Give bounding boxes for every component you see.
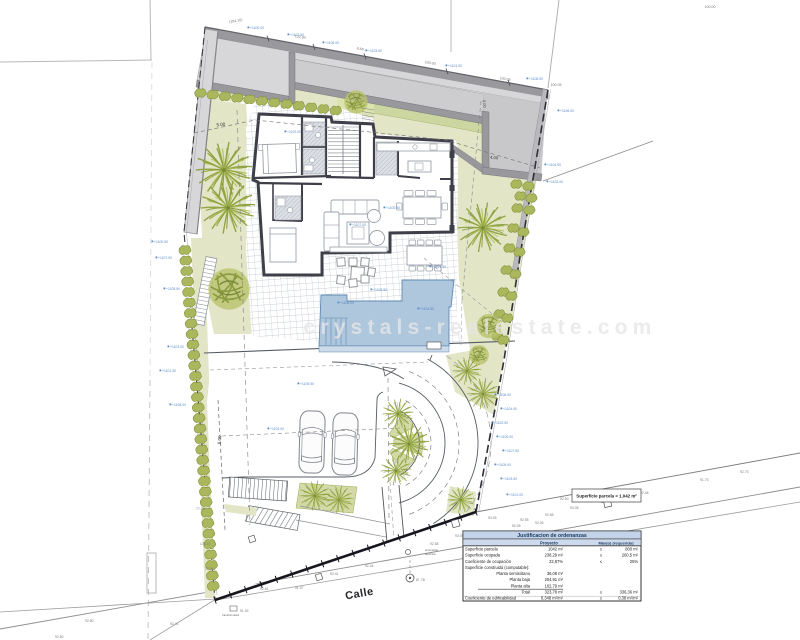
svg-text:92.80: 92.80 [85,619,94,623]
svg-text:+1106.50: +1106.50 [497,393,511,397]
svg-text:0,38 m²/m²: 0,38 m²/m² [618,596,638,601]
svg-text:93.05: 93.05 [455,534,464,538]
svg-text:+1107.50: +1107.50 [505,449,519,453]
svg-text:+1108.50: +1108.50 [373,288,387,292]
svg-text:336,36 m²: 336,36 m² [620,590,639,595]
svg-text:92.41: 92.41 [330,572,339,576]
svg-text:+1101.50: +1101.50 [432,265,446,269]
svg-text:+1108.00: +1108.00 [172,403,186,407]
svg-text:92.88: 92.88 [430,542,439,546]
svg-text:+1101.00: +1101.00 [448,64,462,68]
svg-text:0,348 m²/m²: 0,348 m²/m² [541,596,564,601]
svg-text:Planta baja: Planta baja [510,577,531,582]
svg-text:92.44: 92.44 [365,564,374,568]
svg-text:Superficie parcela: Superficie parcela [465,547,498,552]
svg-text:+1105.00: +1105.00 [497,463,511,467]
svg-text:Total: Total [521,590,530,595]
svg-text:+1103.00: +1103.00 [170,345,184,349]
svg-text:100.05: 100.05 [551,83,562,87]
svg-text:204,91 m²: 204,91 m² [545,577,564,582]
svg-text:+1101.50: +1101.50 [162,369,176,373]
svg-text:92.05: 92.05 [535,521,544,525]
svg-text:93.05: 93.05 [488,516,497,520]
svg-text:50.05: 50.05 [512,524,521,528]
svg-text:36,08 m²: 36,08 m² [547,571,564,576]
svg-text:Planta alta: Planta alta [511,583,531,588]
svg-text:+1103.00: +1103.00 [270,427,284,431]
svg-text:6.00: 6.00 [217,435,223,445]
svg-text:260,5 m²: 260,5 m² [622,553,639,558]
svg-text:Máx(o) (requerido): Máx(o) (requerido) [598,540,634,545]
svg-text:crystals-realestate.com: crystals-realestate.com [303,316,656,339]
svg-text:+1103.50: +1103.50 [368,49,382,53]
svg-text:Superficie ocupada: Superficie ocupada [465,553,501,558]
svg-text:1042 m²: 1042 m² [548,547,564,552]
svg-text:8.00: 8.00 [482,100,488,109]
svg-text:91.75: 91.75 [700,478,709,482]
svg-text:Coeficiente de edificabilidad: Coeficiente de edificabilidad [465,596,517,601]
svg-text:Superficie parcela = 1.042 m²: Superficie parcela = 1.042 m² [576,494,637,499]
svg-text:22,87%: 22,87% [549,559,563,564]
svg-text:92.65: 92.65 [545,513,554,517]
svg-text:178.10: 178.10 [200,542,210,546]
svg-text:+1108.50: +1108.50 [529,77,543,81]
svg-text:25%: 25% [630,559,639,564]
svg-text:91.97: 91.97 [295,586,304,590]
svg-text:4.00: 4.00 [490,155,499,161]
svg-text:+1105.00: +1105.00 [325,41,339,45]
svg-text:77.06: 77.06 [205,567,214,571]
svg-text:electrica: electrica [425,552,436,556]
svg-text:92.80: 92.80 [55,635,64,639]
svg-text:100.00: 100.00 [705,5,716,9]
svg-text:+1104.50: +1104.50 [547,163,561,167]
svg-text:+1105.50: +1105.50 [300,382,314,386]
svg-text:+1102.00: +1102.00 [549,180,563,184]
svg-text:92.55: 92.55 [520,518,529,522]
svg-text:92.61: 92.61 [260,587,269,591]
svg-text:+1100.00: +1100.00 [499,435,513,439]
svg-text:+1100.00: +1100.00 [250,26,264,30]
svg-text:5.00: 5.00 [216,122,226,128]
svg-text:+1104.50: +1104.50 [420,307,434,311]
svg-text:+1102.00: +1102.00 [287,130,301,134]
svg-text:+1107.00: +1107.00 [158,256,172,260]
svg-text:162,79 m²: 162,79 m² [545,583,564,588]
svg-text:Superficie construida (computa: Superficie construida (computable): [465,565,529,570]
svg-text:Planta semisótano: Planta semisótano [496,571,530,576]
svg-text:+1101.00: +1101.00 [509,493,523,497]
svg-text:Ø .78: Ø .78 [416,578,425,582]
svg-text:92.41: 92.41 [170,622,179,626]
svg-text:800 m²: 800 m² [625,547,638,552]
svg-text:transformador: transformador [222,613,239,617]
svg-text:Proyecto: Proyecto [540,540,558,545]
svg-text:+1105.50: +1105.50 [166,287,180,291]
svg-text:92.50: 92.50 [560,497,569,501]
svg-text:+1103.50: +1103.50 [503,477,517,481]
svg-text:77.06: 77.06 [196,507,205,511]
svg-text:238,29 m²: 238,29 m² [545,553,564,558]
svg-text:+1102.50: +1102.50 [494,421,508,425]
svg-text:+1107.00: +1107.00 [352,223,366,227]
svg-text:+1106.00: +1106.00 [560,109,574,113]
svg-text:+1104.00: +1104.00 [503,407,517,411]
svg-text:91.92: 91.92 [240,609,249,613]
svg-text:+1100.50: +1100.50 [386,206,400,210]
svg-text:+1100.50: +1100.50 [154,240,168,244]
svg-text:93.08: 93.08 [570,506,579,510]
svg-text:+1106.00: +1106.00 [340,301,354,305]
svg-text:Justificacion de ordenanzas: Justificacion de ordenanzas [517,533,587,539]
svg-text:92.75: 92.75 [740,470,749,474]
svg-text:Coeficiente de ocupación: Coeficiente de ocupación [465,559,512,564]
svg-text:323,78 m²: 323,78 m² [545,590,564,595]
